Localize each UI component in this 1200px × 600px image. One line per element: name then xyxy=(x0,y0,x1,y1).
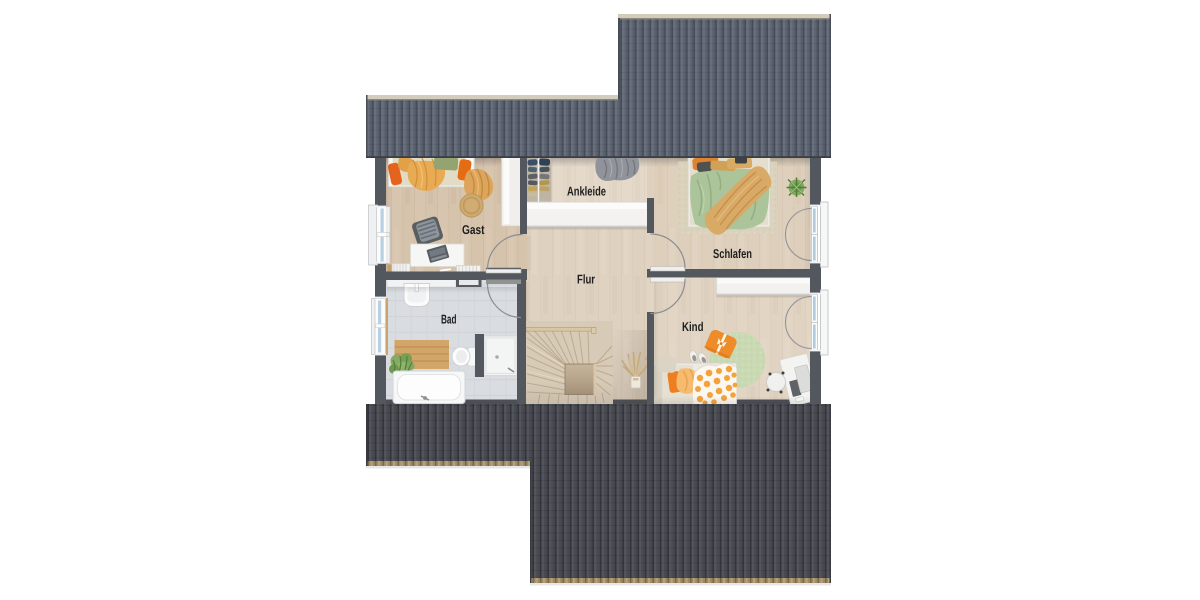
svg-text:Bad: Bad xyxy=(441,312,457,327)
svg-text:Schlafen: Schlafen xyxy=(713,246,752,261)
svg-text:Gast: Gast xyxy=(462,222,485,237)
svg-text:Flur: Flur xyxy=(577,272,595,287)
svg-text:Kind: Kind xyxy=(682,319,704,334)
svg-text:Ankleide: Ankleide xyxy=(567,184,606,199)
